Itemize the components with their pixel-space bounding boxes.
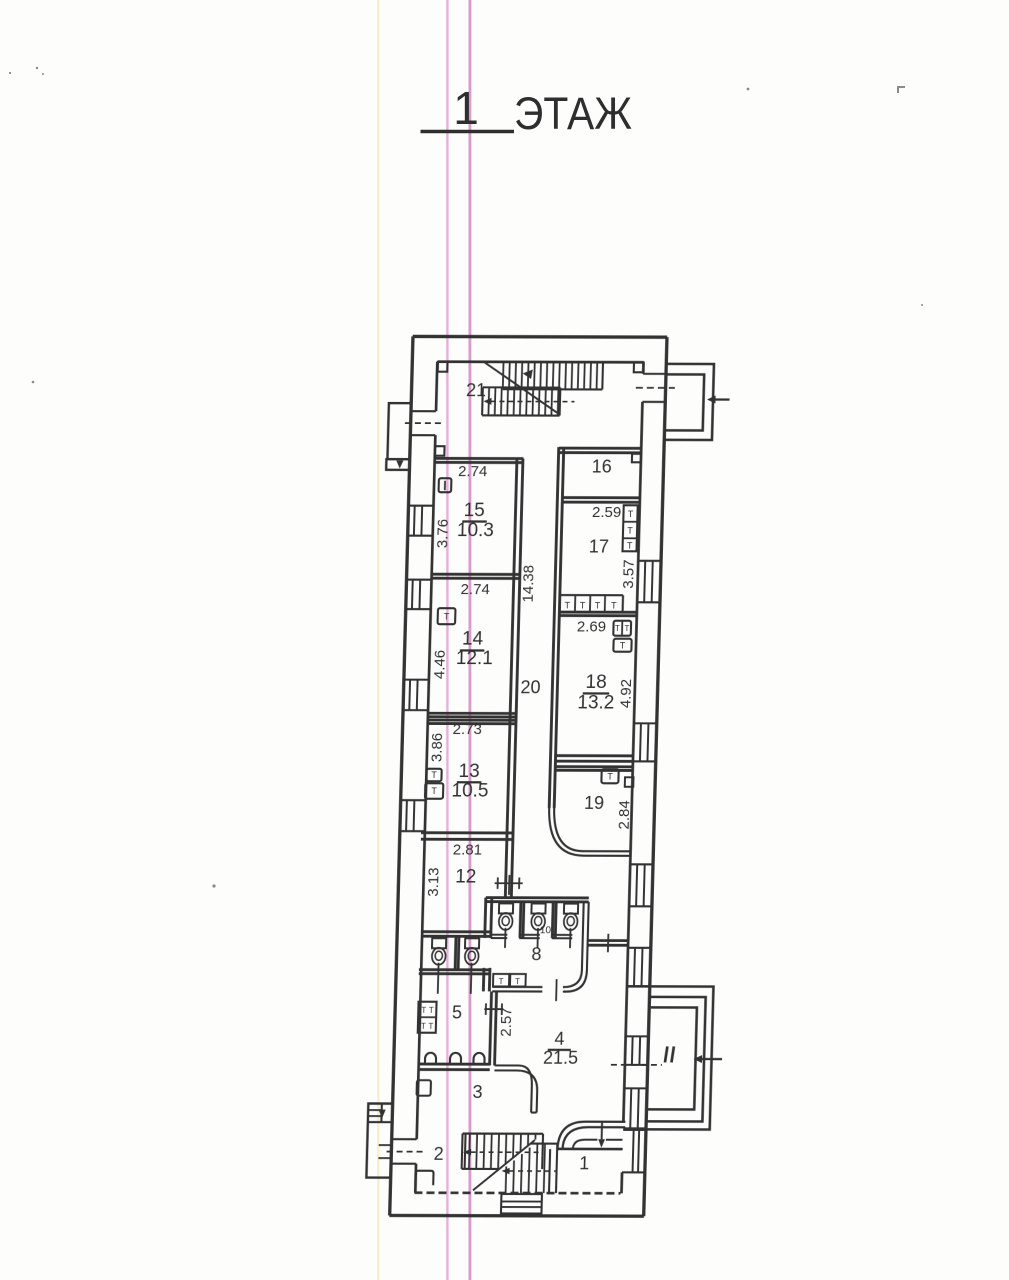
svg-text:4: 4 [554,1029,565,1049]
svg-text:Т: Т [620,640,626,650]
svg-text:Т: Т [627,541,633,551]
svg-text:12: 12 [455,866,477,887]
svg-text:21.5: 21.5 [543,1048,579,1068]
svg-text:13: 13 [458,761,480,782]
svg-text:ЭТАЖ: ЭТАЖ [514,88,632,139]
svg-text:Т: Т [628,509,634,519]
svg-text:14.38: 14.38 [520,565,538,603]
svg-text:2.84: 2.84 [615,800,633,829]
svg-text:19: 19 [584,793,605,813]
svg-text:5: 5 [452,1002,463,1022]
svg-text:Т: Т [444,611,450,621]
svg-text:4.46: 4.46 [431,650,449,679]
svg-text:3.13: 3.13 [425,867,443,896]
svg-text:Т: Т [611,601,617,611]
svg-text:Т: Т [499,977,504,986]
svg-text:2.81: 2.81 [453,842,483,859]
svg-text:1: 1 [453,82,479,134]
svg-text:15: 15 [463,500,485,521]
svg-text:Т: Т [431,770,437,780]
svg-text:Т: Т [580,601,586,611]
svg-text:2.74: 2.74 [460,581,490,598]
svg-text:2.69: 2.69 [577,618,607,635]
svg-text:Т: Т [627,526,633,536]
svg-text:2.73: 2.73 [452,721,482,738]
svg-text:20: 20 [520,677,541,697]
svg-text:4.92: 4.92 [617,679,635,708]
svg-text:13.2: 13.2 [577,693,615,714]
svg-text:1: 1 [579,1153,590,1173]
svg-text:16: 16 [591,457,612,477]
svg-text:Т: Т [421,1006,426,1015]
svg-text:17: 17 [589,537,610,557]
svg-text:10.3: 10.3 [457,520,495,541]
svg-text:Т: Т [615,624,620,633]
svg-text:3.57: 3.57 [620,559,638,588]
svg-text:Т: Т [607,771,613,781]
svg-text:Т: Т [595,601,601,611]
svg-text:10: 10 [540,925,552,936]
svg-text:Т: Т [624,624,629,633]
svg-text:Т: Т [428,1022,433,1031]
svg-text:2: 2 [433,1144,444,1164]
svg-text:2.74: 2.74 [458,463,488,480]
svg-text:10.5: 10.5 [451,781,489,802]
svg-text:3.86: 3.86 [429,733,447,762]
svg-text:2.57: 2.57 [497,1007,515,1036]
svg-text:8: 8 [531,944,542,964]
svg-text:Т: Т [429,1006,434,1015]
svg-text:Т: Т [431,786,437,796]
svg-text:Т: Т [515,977,520,986]
svg-text:12.1: 12.1 [456,648,494,669]
svg-text:14: 14 [462,629,484,650]
svg-text:Т: Т [564,601,570,611]
svg-text:18: 18 [585,672,607,693]
svg-text:2.59: 2.59 [592,504,622,521]
svg-text:Т: Т [421,1022,426,1031]
svg-text:3.76: 3.76 [434,519,452,548]
svg-text:3: 3 [472,1082,483,1102]
